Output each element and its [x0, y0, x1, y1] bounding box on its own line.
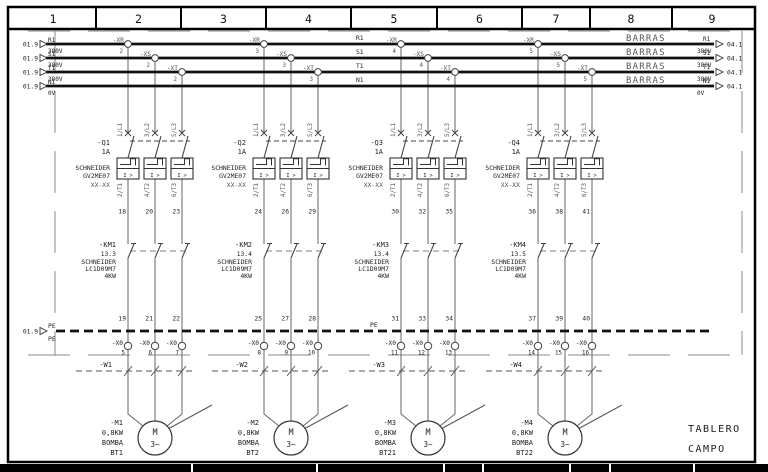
terminal-number: 10: [308, 351, 315, 357]
magnetic-trip-label: I >: [450, 173, 459, 179]
breaker-tag: -Q4: [507, 139, 520, 147]
tap-name: -XT: [577, 65, 588, 72]
wire-number: 25: [254, 316, 262, 323]
motor-phase: 3~: [560, 440, 570, 449]
magnetic-trip-label: I >: [533, 173, 542, 179]
bus-name-right: S1: [703, 50, 711, 57]
motor-phase: 3~: [286, 440, 296, 449]
terminal-circle: [287, 342, 294, 349]
terminal-circle: [397, 342, 404, 349]
breaker-tag: -Q2: [233, 139, 246, 147]
contactor-tag: -KM1: [99, 241, 116, 249]
breaker-rating: 1A: [238, 148, 247, 156]
wire-number: 31: [391, 316, 399, 323]
wire-number: 34: [445, 316, 453, 323]
breaker-note: XX-XX: [501, 181, 520, 189]
motor-circle: [411, 421, 445, 455]
contactor-power: 4KW: [240, 272, 252, 280]
motor-service: BOMBA: [238, 439, 260, 447]
tap-number: 2: [120, 49, 124, 55]
breaker-top-terminal: 3/L2: [145, 123, 151, 137]
tap-number: 5: [530, 49, 534, 55]
breaker-bottom-terminal: 2/T1: [528, 183, 534, 197]
tap-number: 3: [256, 49, 260, 55]
breaker-bottom-terminal: 4/T2: [555, 183, 561, 197]
schematic-canvas: I >1/L12/T11819-X05I >3/L24/T22021-X06I …: [0, 0, 768, 472]
column-number: 5: [391, 12, 398, 26]
motor-service: BOMBA: [375, 439, 397, 447]
bus-dst-ref: 04.1: [727, 56, 742, 63]
terminal-number: 5: [122, 351, 126, 357]
breaker-top-terminal: 1/L1: [391, 123, 397, 137]
bus-name-left: R1: [48, 37, 56, 44]
terminal-number: 8: [258, 351, 262, 357]
tap-circle: [535, 41, 542, 48]
wire-number: 18: [118, 209, 126, 216]
tap-name: -XT: [167, 65, 178, 72]
breaker-bottom-terminal: 6/T3: [308, 183, 314, 197]
terminal-circle: [424, 342, 431, 349]
wire-number: 27: [281, 316, 289, 323]
barras-label: BARRAS: [626, 76, 666, 86]
wire-number: 41: [582, 209, 590, 216]
cable-tag: -W1: [99, 361, 112, 369]
wire-number: 20: [145, 209, 153, 216]
tap-number: 5: [557, 63, 561, 69]
column-number: 6: [476, 12, 483, 26]
motor-letter: M: [562, 428, 567, 438]
breaker-bottom-terminal: 2/T1: [391, 183, 397, 197]
campo-label: CAMPO: [688, 444, 726, 455]
tap-number: 4: [393, 49, 397, 55]
bus-name-right: R1: [703, 36, 711, 43]
terminal-strip-tag: -X0: [248, 340, 259, 347]
tap-circle: [261, 41, 268, 48]
contactor-ref: 13.4: [237, 250, 253, 258]
bus-voltage-right: 0V: [697, 90, 705, 97]
tap-circle: [152, 55, 159, 62]
bus-src-ref: 01.9: [23, 42, 38, 49]
contactor-ref: 13.4: [374, 250, 390, 258]
contactor-tag: -KM2: [235, 241, 252, 249]
tap-number: 2: [174, 77, 178, 83]
contactor-tag: -KM3: [372, 241, 389, 249]
tap-name: -XS: [140, 51, 151, 58]
tap-name: -XR: [113, 37, 124, 44]
terminal-circle: [588, 342, 595, 349]
tap-name: -XR: [249, 37, 260, 44]
tap-circle: [179, 69, 186, 76]
bus-name-mid: T1: [356, 63, 364, 70]
bus-name-mid: S1: [356, 49, 364, 56]
bus-name-left: T1: [48, 65, 56, 72]
terminal-strip-tag: -X0: [112, 340, 123, 347]
contactor-power: 4KW: [514, 272, 526, 280]
bus-name-mid: N1: [356, 77, 364, 84]
terminal-number: 14: [528, 351, 535, 357]
breaker-rating: 1A: [375, 148, 384, 156]
terminal-strip-tag: -X0: [522, 340, 533, 347]
tap-name: -XS: [413, 51, 424, 58]
terminal-strip-tag: -X0: [439, 340, 450, 347]
tap-number: 3: [283, 63, 287, 69]
breaker-bottom-terminal: 2/T1: [118, 183, 124, 197]
magnetic-trip-label: I >: [177, 173, 186, 179]
breaker-top-terminal: 1/L1: [254, 123, 260, 137]
breaker-brand: SCHNEIDER: [485, 164, 520, 172]
wire-number: 28: [308, 316, 316, 323]
breaker-top-terminal: 5/L3: [308, 123, 314, 137]
motor-tag: -M1: [110, 419, 123, 427]
column-number: 2: [135, 12, 142, 26]
breaker-top-terminal: 5/L3: [582, 123, 588, 137]
terminal-circle: [534, 342, 541, 349]
tap-name: -XS: [276, 51, 287, 58]
terminal-circle: [151, 342, 158, 349]
terminal-circle: [561, 342, 568, 349]
bus-name-right: N1: [703, 78, 711, 85]
motor-phase: 3~: [423, 440, 433, 449]
magnetic-trip-label: I >: [286, 173, 295, 179]
breaker-bottom-terminal: 4/T2: [145, 183, 151, 197]
terminal-number: 7: [176, 351, 180, 357]
bus-name-left: S1: [48, 51, 56, 58]
tap-number: 4: [447, 77, 451, 83]
wire-number: 24: [254, 209, 262, 216]
breaker-model: GV2ME07: [83, 172, 110, 180]
cable-tag: -W2: [235, 361, 248, 369]
wire-number: 35: [445, 209, 453, 216]
breaker-tag: -Q1: [97, 139, 110, 147]
pe-label-mid: PE: [370, 321, 378, 329]
tap-name: -XR: [523, 37, 534, 44]
wire-number: 30: [391, 209, 399, 216]
contactor-ref: 13.5: [511, 250, 527, 258]
terminal-strip-tag: -X0: [139, 340, 150, 347]
terminal-strip-tag: -X0: [549, 340, 560, 347]
bus-dst-ref: 04.1: [727, 84, 742, 91]
motor-letter: M: [425, 428, 430, 438]
motor-letter: M: [288, 428, 293, 438]
breaker-top-terminal: 1/L1: [528, 123, 534, 137]
motor-name: BT22: [516, 449, 533, 457]
breaker-brand: SCHNEIDER: [348, 164, 383, 172]
contactor-ref: 13.3: [101, 250, 117, 258]
wire-number: 37: [528, 316, 536, 323]
terminal-number: 9: [285, 351, 289, 357]
magnetic-trip-label: I >: [150, 173, 159, 179]
breaker-bottom-terminal: 6/T3: [445, 183, 451, 197]
pe-label-bottom: PE: [48, 335, 56, 343]
tap-number: 2: [147, 63, 151, 69]
bus-name-mid: R1: [356, 35, 364, 42]
tap-name: -XT: [440, 65, 451, 72]
magnetic-trip-label: I >: [259, 173, 268, 179]
bus-voltage-left: 0V: [48, 90, 56, 97]
wire-number: 38: [555, 209, 563, 216]
wire-number: 33: [418, 316, 426, 323]
tap-number: 5: [584, 77, 588, 83]
wire-number: 22: [172, 316, 180, 323]
breaker-brand: SCHNEIDER: [211, 164, 246, 172]
motor-name: BT2: [246, 449, 259, 457]
wire-number: 21: [145, 316, 153, 323]
terminal-number: 16: [582, 351, 589, 357]
magnetic-trip-label: I >: [123, 173, 132, 179]
breaker-top-terminal: 3/L2: [281, 123, 287, 137]
column-number: 3: [220, 12, 227, 26]
tap-circle: [589, 69, 596, 76]
pe-label-top: PE: [48, 322, 56, 330]
breaker-bottom-terminal: 6/T3: [172, 183, 178, 197]
motor-letter: M: [152, 428, 157, 438]
bus-name-right: T1: [703, 64, 711, 71]
motor-tag: -M3: [383, 419, 396, 427]
motor-tag: -M4: [520, 419, 533, 427]
terminal-strip-tag: -X0: [302, 340, 313, 347]
breaker-model: GV2ME07: [356, 172, 383, 180]
bus-src-ref: 01.9: [23, 56, 38, 63]
schematic-sheet: I >1/L12/T11819-X05I >3/L24/T22021-X06I …: [0, 0, 768, 472]
motor-service: BOMBA: [102, 439, 124, 447]
magnetic-trip-label: I >: [313, 173, 322, 179]
terminal-strip-tag: -X0: [385, 340, 396, 347]
column-number: 9: [709, 12, 716, 26]
column-number: 4: [305, 12, 312, 26]
wire-number: 40: [582, 316, 590, 323]
tap-circle: [288, 55, 295, 62]
barras-label: BARRAS: [626, 34, 666, 44]
bus-dst-ref: 04.1: [727, 70, 742, 77]
motor-tag: -M2: [246, 419, 259, 427]
tap-circle: [315, 69, 322, 76]
terminal-number: 11: [391, 351, 398, 357]
terminal-number: 15: [555, 351, 562, 357]
bus-dst-ref: 04.1: [727, 42, 742, 49]
wire-number: 32: [418, 209, 426, 216]
magnetic-trip-label: I >: [396, 173, 405, 179]
contactor-power: 4KW: [104, 272, 116, 280]
terminal-circle: [314, 342, 321, 349]
breaker-top-terminal: 3/L2: [555, 123, 561, 137]
magnetic-trip-label: I >: [423, 173, 432, 179]
terminal-circle: [451, 342, 458, 349]
bus-src-ref: 01.9: [23, 70, 38, 77]
breaker-bottom-terminal: 4/T2: [418, 183, 424, 197]
breaker-bottom-terminal: 4/T2: [281, 183, 287, 197]
motor-circle: [274, 421, 308, 455]
motor-circle: [138, 421, 172, 455]
tap-number: 4: [420, 63, 424, 69]
column-number: 7: [553, 12, 560, 26]
tap-circle: [562, 55, 569, 62]
terminal-number: 6: [149, 351, 153, 357]
breaker-rating: 1A: [102, 148, 111, 156]
pe-src-ref: 01.9: [23, 329, 38, 336]
wire-number: 19: [118, 316, 126, 323]
terminal-strip-tag: -X0: [576, 340, 587, 347]
motor-phase: 3~: [150, 440, 160, 449]
terminal-circle: [178, 342, 185, 349]
terminal-number: 13: [445, 351, 452, 357]
magnetic-trip-label: I >: [587, 173, 596, 179]
cable-tag: -W3: [372, 361, 385, 369]
tap-name: -XR: [386, 37, 397, 44]
terminal-strip-tag: -X0: [412, 340, 423, 347]
motor-circle: [548, 421, 582, 455]
breaker-tag: -Q3: [370, 139, 383, 147]
breaker-top-terminal: 3/L2: [418, 123, 424, 137]
wire-number: 26: [281, 209, 289, 216]
breaker-top-terminal: 5/L3: [445, 123, 451, 137]
breaker-top-terminal: 5/L3: [172, 123, 178, 137]
bottom-title-strip: [0, 464, 768, 472]
motor-service: BOMBA: [512, 439, 534, 447]
barras-label: BARRAS: [626, 48, 666, 58]
terminal-strip-tag: -X0: [275, 340, 286, 347]
terminal-circle: [260, 342, 267, 349]
terminal-number: 12: [418, 351, 425, 357]
magnetic-trip-label: I >: [560, 173, 569, 179]
breaker-brand: SCHNEIDER: [75, 164, 110, 172]
wire-number: 23: [172, 209, 180, 216]
breaker-model: GV2ME07: [219, 172, 246, 180]
breaker-note: XX-XX: [91, 181, 110, 189]
contactor-power: 4KW: [377, 272, 389, 280]
motor-power: 0,8KW: [512, 429, 534, 437]
contactor-tag: -KM4: [509, 241, 526, 249]
breaker-note: XX-XX: [227, 181, 246, 189]
tap-name: -XT: [303, 65, 314, 72]
breaker-rating: 1A: [512, 148, 521, 156]
breaker-bottom-terminal: 2/T1: [254, 183, 260, 197]
tap-circle: [452, 69, 459, 76]
breaker-model: GV2ME07: [493, 172, 520, 180]
column-number: 8: [628, 12, 635, 26]
tap-name: -XS: [550, 51, 561, 58]
motor-name: BT1: [110, 449, 123, 457]
motor-power: 0,8KW: [375, 429, 397, 437]
terminal-circle: [124, 342, 131, 349]
tap-circle: [425, 55, 432, 62]
motor-power: 0,8KW: [102, 429, 124, 437]
column-number: 1: [50, 12, 57, 26]
wire-number: 39: [555, 316, 563, 323]
barras-label: BARRAS: [626, 62, 666, 72]
breaker-note: XX-XX: [364, 181, 383, 189]
wire-number: 29: [308, 209, 316, 216]
breaker-top-terminal: 1/L1: [118, 123, 124, 137]
wire-number: 36: [528, 209, 536, 216]
tap-circle: [125, 41, 132, 48]
tap-number: 3: [310, 77, 314, 83]
bus-src-ref: 01.9: [23, 84, 38, 91]
breaker-bottom-terminal: 6/T3: [582, 183, 588, 197]
terminal-strip-tag: -X0: [166, 340, 177, 347]
bus-name-left: N1: [48, 79, 56, 86]
cable-tag: -W4: [509, 361, 522, 369]
tap-circle: [398, 41, 405, 48]
motor-name: BT21: [379, 449, 396, 457]
motor-power: 0,8KW: [238, 429, 260, 437]
tablero-label: TABLERO: [688, 424, 741, 435]
